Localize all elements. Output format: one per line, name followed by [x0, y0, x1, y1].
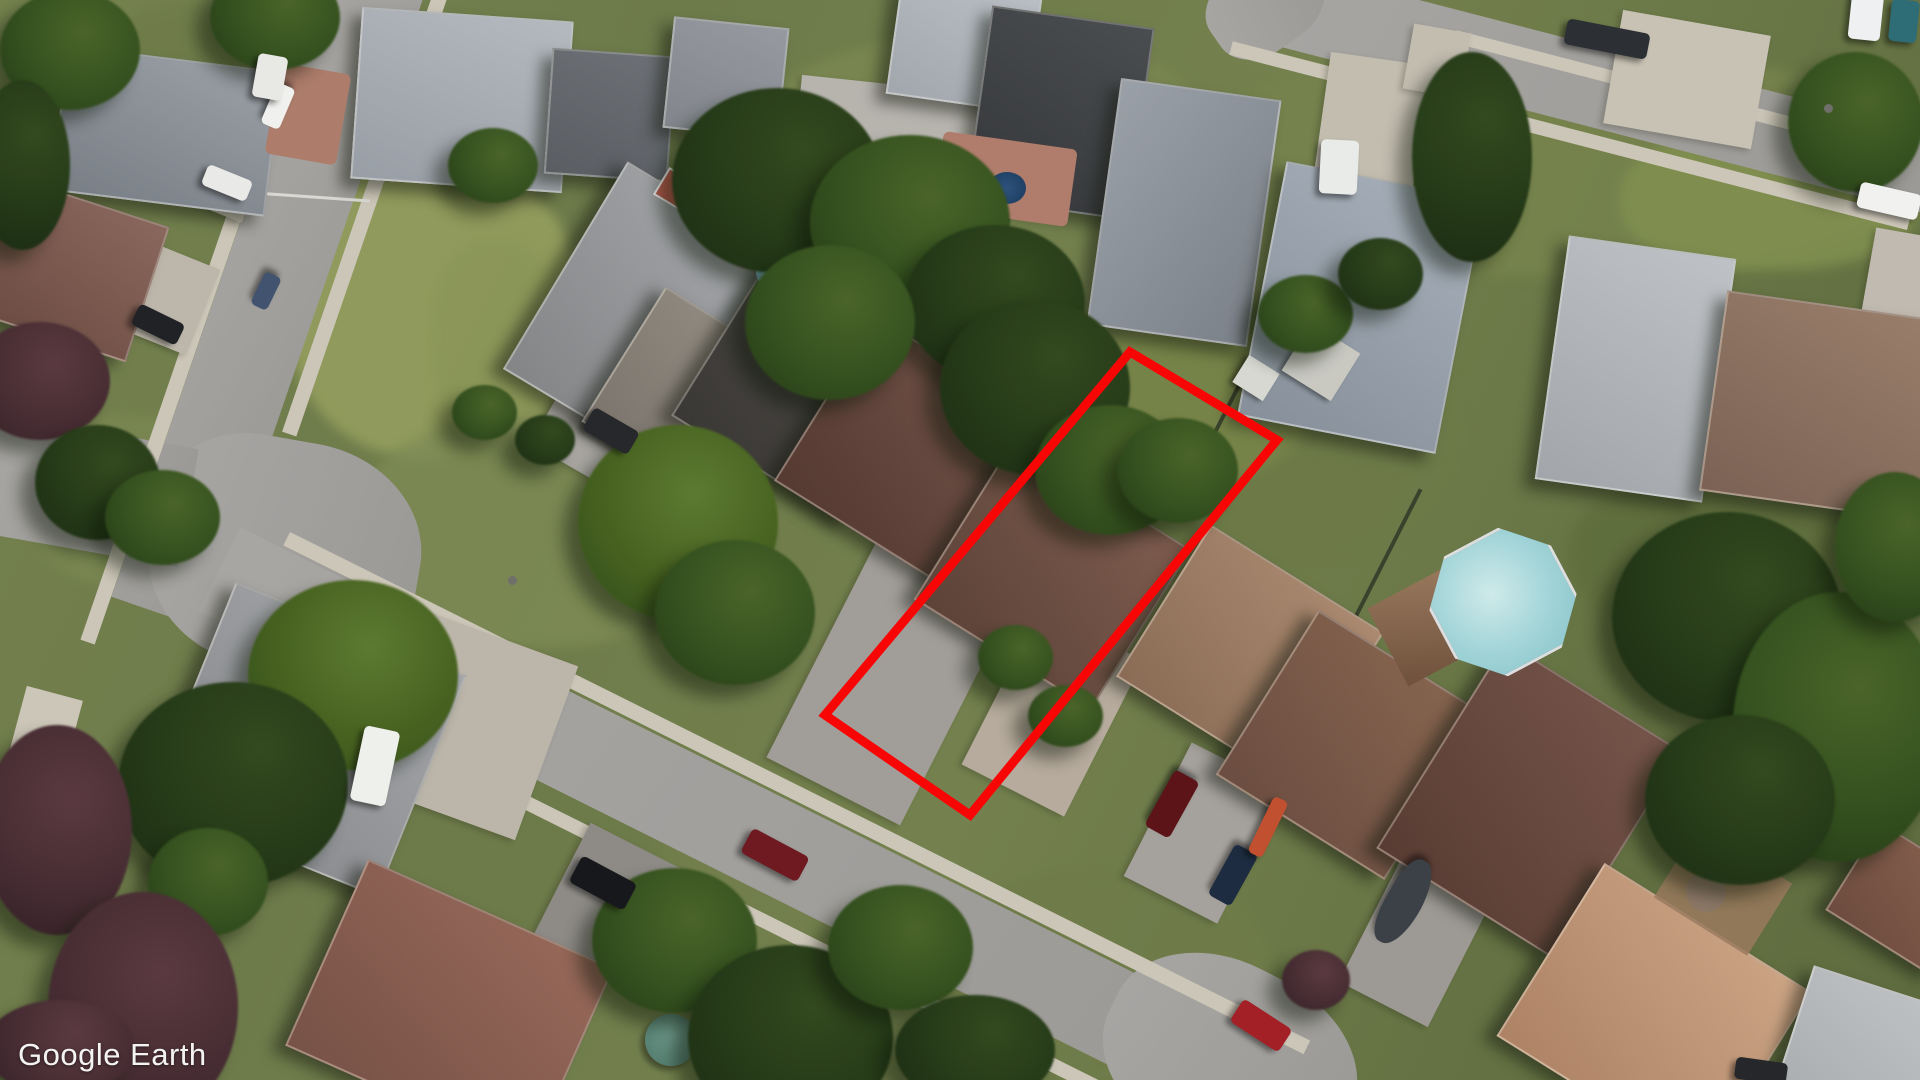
tree	[828, 885, 973, 1010]
truck-white	[1847, 0, 1884, 42]
tree	[1118, 418, 1238, 523]
tree	[1258, 275, 1353, 353]
house-roof-gray-gable	[1086, 78, 1281, 347]
house-roof-darkgray	[544, 48, 676, 182]
bush	[515, 415, 575, 465]
manhole	[1824, 104, 1833, 113]
bush	[978, 625, 1053, 690]
car-teal	[1888, 0, 1920, 43]
map-canvas[interactable]: Google Earth	[0, 0, 1920, 1080]
car-dark	[1734, 1056, 1789, 1080]
tree	[1338, 238, 1423, 310]
tree	[1412, 52, 1532, 262]
tree	[655, 540, 815, 685]
tree	[1645, 715, 1835, 885]
tree	[448, 128, 538, 203]
bush-burgundy	[1282, 950, 1350, 1010]
tree	[1788, 52, 1920, 192]
bush	[1028, 685, 1103, 747]
bush	[452, 385, 517, 440]
manhole	[508, 576, 517, 585]
google-earth-watermark: Google Earth	[18, 1037, 207, 1073]
pickup-white	[1319, 139, 1360, 195]
tree	[745, 245, 915, 400]
tree	[105, 470, 220, 565]
